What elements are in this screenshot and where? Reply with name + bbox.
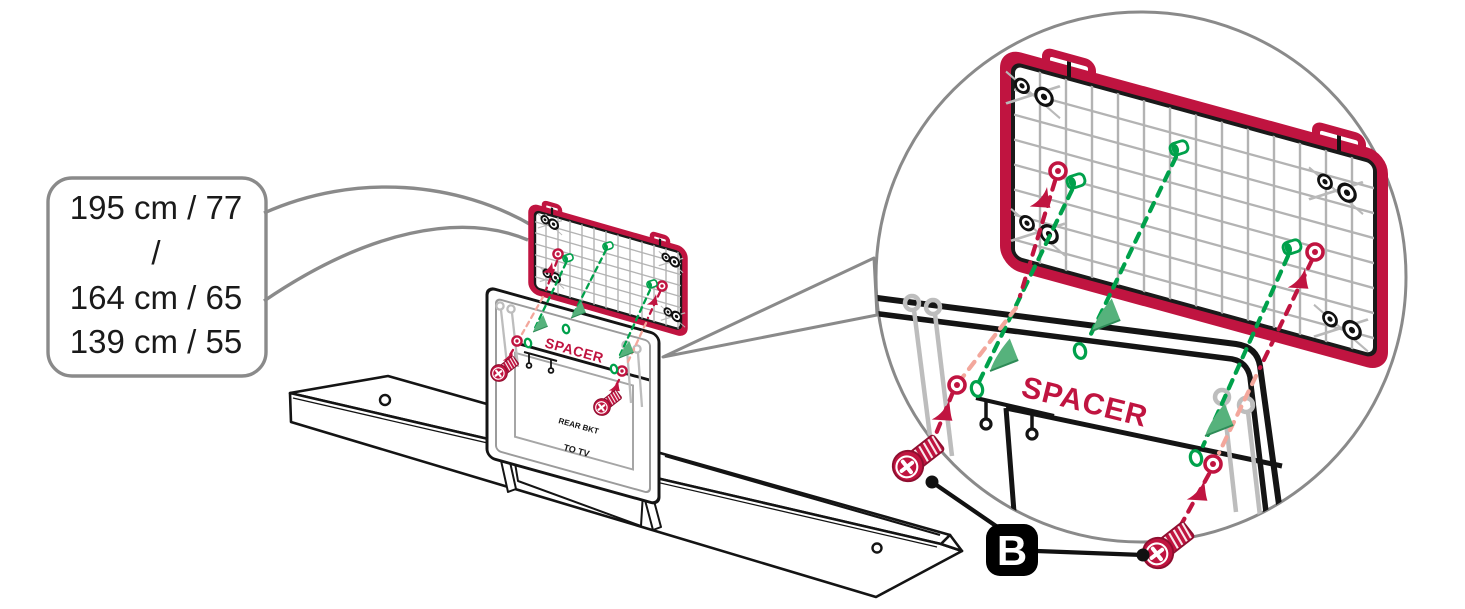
assembly-diagram: 195 cm / 77 / 164 cm / 65 139 cm / 55 (0, 0, 1465, 609)
spacer-ring-icon (524, 338, 532, 348)
hole-ring-dot (556, 252, 559, 255)
callout-tail-upper (264, 187, 533, 226)
hole-ring-dot (1312, 249, 1318, 255)
spacer-ring-icon (562, 324, 570, 334)
spacer-ring-icon (610, 364, 618, 374)
leader-dot (1137, 549, 1150, 562)
callout-line-2: / (151, 234, 161, 271)
callout-line-4: 139 cm / 55 (70, 323, 242, 360)
hole-ring-dot (1210, 461, 1216, 467)
part-label-b: B (997, 527, 1027, 574)
hole-ring-dot (620, 369, 623, 372)
size-callout: 195 cm / 77 / 164 cm / 65 139 cm / 55 (48, 178, 533, 376)
callout-line-3: 164 cm / 65 (70, 279, 242, 316)
hole-ring-dot (515, 339, 518, 342)
diagram-canvas: 195 cm / 77 / 164 cm / 65 139 cm / 55 (0, 0, 1465, 609)
hole-ring-dot (660, 284, 663, 287)
base-hole-right (873, 544, 882, 553)
hole-ring-dot (954, 382, 960, 388)
part-leader-line (1037, 551, 1143, 555)
hole-ring-dot (1055, 168, 1061, 174)
callout-line-1: 195 cm / 77 (70, 189, 242, 226)
zoom-wedge-pointer (663, 258, 877, 357)
leader-dot (926, 476, 939, 489)
base-hole-left (380, 395, 390, 405)
